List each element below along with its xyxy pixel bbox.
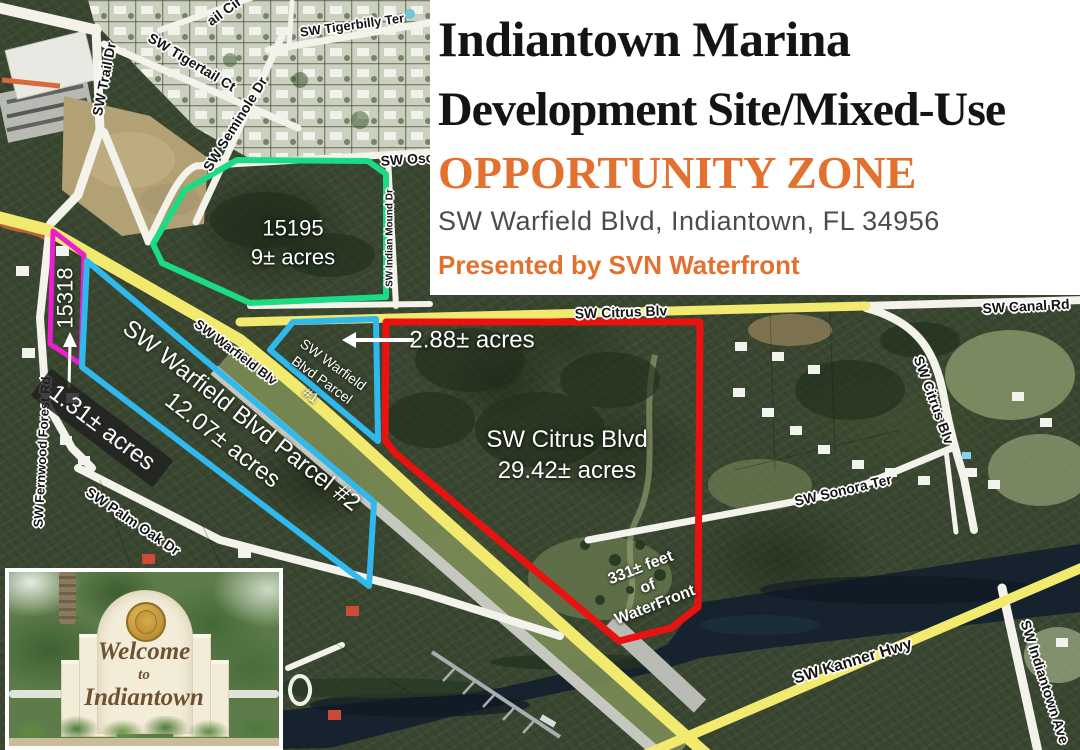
parcel-label-green-15195: 15195 9± acres xyxy=(251,214,335,271)
ground-strip xyxy=(9,738,279,746)
title-line-2: Development Site/Mixed-Use xyxy=(438,82,1005,137)
red-name: SW Citrus Blvd xyxy=(486,424,647,455)
title-line-1: Indiantown Marina xyxy=(438,10,850,68)
sign-line-indiantown: Indiantown xyxy=(69,684,219,712)
road-label-sw-indian-mound-dr: SW Indian Mound Dr xyxy=(385,189,396,287)
parcel-label-red-citrus: SW Citrus Blvd 29.42± acres xyxy=(486,424,647,486)
parcel-label-blue1-acres: 2.88± acres xyxy=(409,324,534,355)
flyer-canvas: ail Cir SW Tigerbilly Ter SW Tigertail C… xyxy=(0,0,1080,750)
welcome-sign-text: Welcome to Indiantown xyxy=(69,638,219,711)
parcel-green-id: 15195 xyxy=(251,214,335,243)
parcel-green-acres: 9± acres xyxy=(251,243,335,272)
palm-trunk xyxy=(59,572,76,624)
road-label-sw-citrus-blv-horizontal: SW Citrus Blv xyxy=(574,302,667,321)
sign-line-welcome: Welcome xyxy=(69,638,219,666)
property-address: SW Warfield Blvd, Indiantown, FL 34956 xyxy=(438,206,940,237)
red-acres: 29.42± acres xyxy=(486,455,647,486)
parcel-label-magenta-id: 15318 xyxy=(52,267,81,328)
welcome-sign-photo-inset: Welcome to Indiantown xyxy=(5,568,283,750)
sign-line-to: to xyxy=(69,666,219,684)
title-panel: Indiantown Marina Development Site/Mixed… xyxy=(430,0,1080,295)
sign-medallion-icon xyxy=(126,602,166,642)
title-opportunity-zone: OPPORTUNITY ZONE xyxy=(438,146,916,199)
presented-by: Presented by SVN Waterfront xyxy=(438,250,800,281)
